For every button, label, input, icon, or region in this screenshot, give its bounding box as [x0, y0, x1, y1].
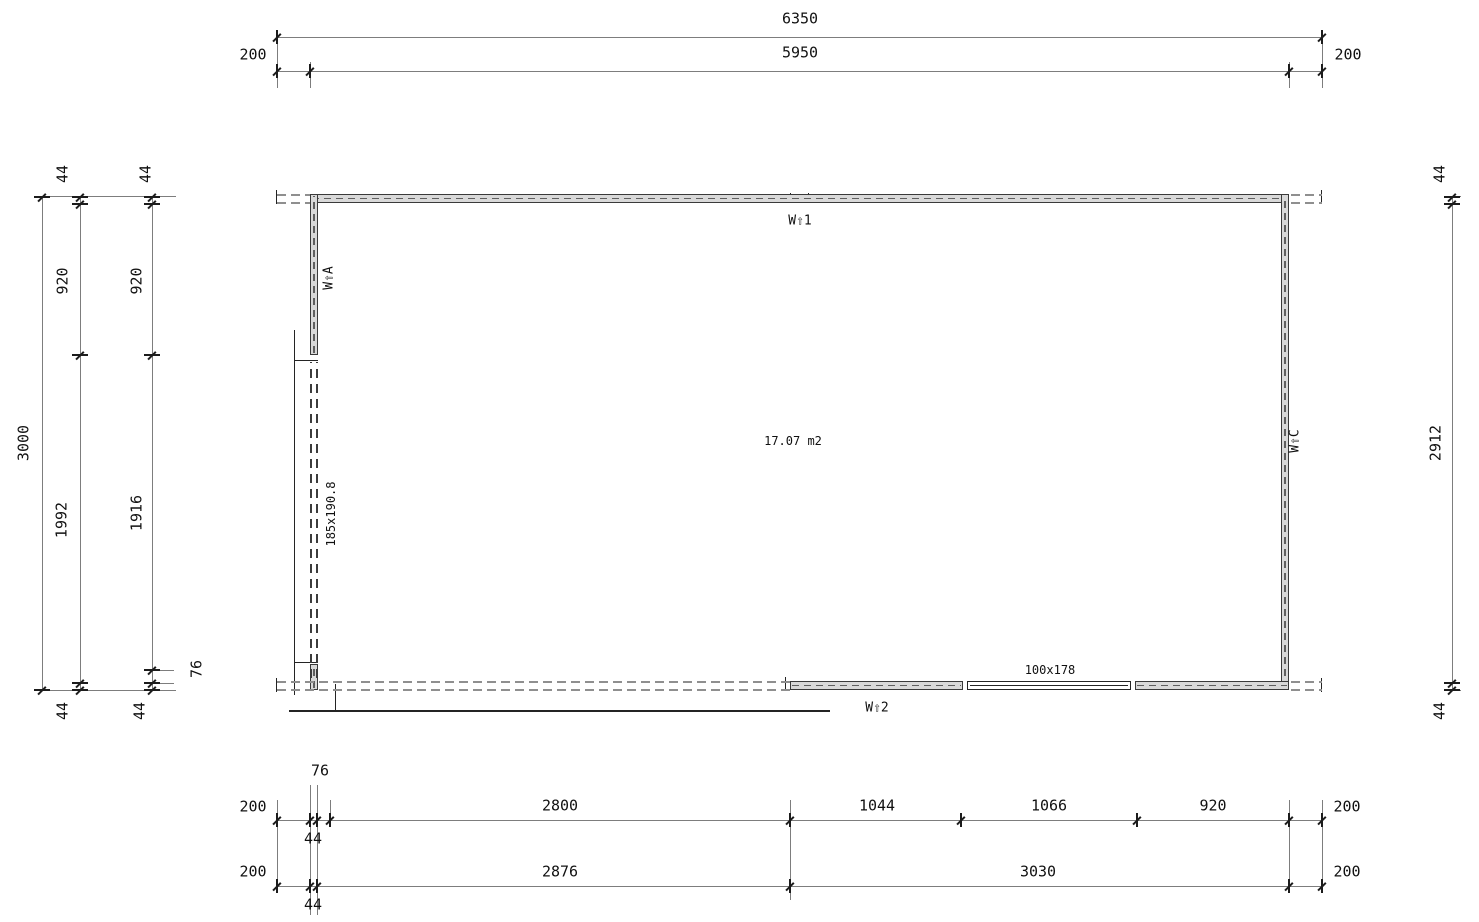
dimension-line — [277, 886, 1322, 887]
dim-left-920-b: 920 — [130, 267, 145, 294]
overhang-dashed-line — [1291, 681, 1322, 683]
window — [967, 681, 1131, 690]
plan-line — [294, 330, 295, 695]
dimension-line — [152, 197, 153, 690]
dim-bottom1-920: 920 — [1199, 799, 1226, 814]
dim-right-44-bottom: 44 — [1433, 702, 1448, 720]
dimension-line — [42, 197, 43, 690]
wall-marker-w2: W⇧2 — [865, 702, 888, 715]
wall-centerline — [792, 685, 961, 687]
plan-line — [289, 710, 830, 712]
dim-left-total-3000: 3000 — [17, 425, 32, 461]
door-dashed-line — [310, 362, 312, 678]
overhang-dashed-line — [1291, 202, 1322, 204]
overhang-dashed-line — [277, 194, 310, 196]
wall-marker-w1: W⇧1 — [788, 215, 811, 228]
dim-left-1992: 1992 — [55, 502, 70, 538]
plan-line — [294, 662, 318, 663]
wall — [1135, 681, 1289, 690]
dim-bottom1-44: 44 — [304, 832, 322, 847]
dim-bottom1-200-right: 200 — [1333, 800, 1360, 815]
dim-bottom2-2876: 2876 — [542, 865, 578, 880]
dim-bottom-76: 76 — [311, 764, 329, 779]
overhang-dashed-line — [277, 689, 790, 691]
room-area-label: 17.07 m2 — [764, 435, 822, 447]
wall-centerline — [312, 198, 1287, 200]
overhang-dashed-line — [1291, 689, 1322, 691]
overhang-dashed-line — [277, 202, 310, 204]
plan-line — [294, 360, 318, 361]
dim-top-wall-5950: 5950 — [782, 46, 818, 61]
dimension-line — [277, 820, 1322, 821]
dim-top-overhang-left-200: 200 — [239, 48, 266, 63]
overhang-dashed-line — [277, 681, 790, 683]
wall-centerline — [313, 666, 315, 688]
dim-left-76: 76 — [190, 660, 205, 678]
floor-plan-drawing: 6350595020020030004492019924444920191676… — [0, 0, 1479, 922]
dim-left-44-top-b: 44 — [139, 165, 154, 183]
dimension-line — [80, 197, 81, 690]
dim-top-overhang-right-200: 200 — [1334, 48, 1361, 63]
dim-bottom1-1044: 1044 — [859, 799, 895, 814]
wall-marker-wc: W⇧C — [1289, 429, 1302, 452]
dim-bottom1-1066: 1066 — [1031, 799, 1067, 814]
wall-marker-wa: W⇧A — [323, 266, 336, 289]
wall — [310, 194, 1289, 203]
dim-bottom1-200-left: 200 — [239, 800, 266, 815]
overhang-dashed-line — [1291, 194, 1322, 196]
dimension-line — [277, 71, 1322, 72]
dim-right-2912: 2912 — [1429, 425, 1444, 461]
door-dashed-line — [316, 362, 318, 678]
wall — [790, 681, 963, 690]
dimension-line — [277, 37, 1322, 38]
dim-bottom1-2800: 2800 — [542, 799, 578, 814]
door-size-label: 185x190.8 — [325, 481, 337, 546]
dimension-line — [1452, 197, 1453, 690]
dim-bottom2-3030: 3030 — [1020, 865, 1056, 880]
dim-left-920-a: 920 — [56, 267, 71, 294]
wall-centerline — [1137, 685, 1287, 687]
window-glazing-line — [970, 685, 1128, 686]
wall-centerline — [1284, 196, 1286, 688]
wall-centerline — [313, 196, 315, 353]
dim-top-overall-6350: 6350 — [782, 12, 818, 27]
dim-left-1916: 1916 — [130, 495, 145, 531]
dim-right-44-top: 44 — [1433, 165, 1448, 183]
dim-bottom2-200-right: 200 — [1333, 865, 1360, 880]
dim-bottom2-44: 44 — [304, 898, 322, 913]
wall — [310, 194, 318, 355]
dim-left-44-bottom-a: 44 — [56, 702, 71, 720]
dim-left-44-bottom-b: 44 — [133, 702, 148, 720]
dim-left-44-top-a: 44 — [56, 165, 71, 183]
dim-bottom2-200-left: 200 — [239, 865, 266, 880]
window-size-label: 100x178 — [1025, 664, 1076, 676]
